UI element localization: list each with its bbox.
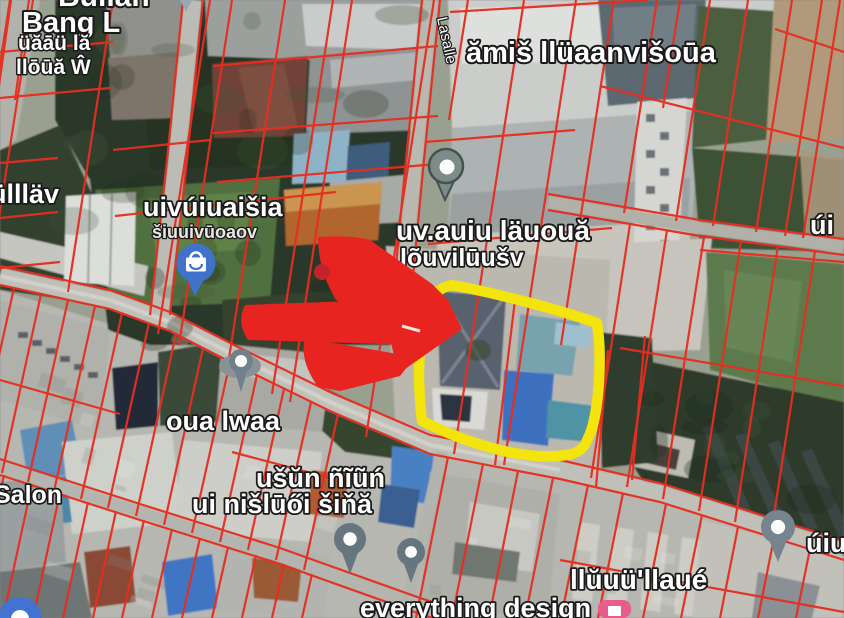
svg-text:lõuvilūušv: lõuvilūušv — [400, 244, 524, 272]
svg-text:ămiš llüaanvišoūa: ămiš llüaanvišoūa — [466, 37, 717, 69]
svg-text:uv.auiu läuouă: uv.auiu läuouă — [396, 215, 590, 246]
svg-text:úiu: úiu — [806, 528, 844, 558]
svg-text:oua lwaa: oua lwaa — [166, 406, 281, 436]
svg-text:úi: úi — [810, 210, 834, 240]
svg-text:llŭuü'llaué: llŭuü'llaué — [570, 564, 707, 595]
svg-text:everything design: everything design — [360, 593, 591, 618]
svg-text:ui nišlūői šiňă: ui nišlūői šiňă — [192, 489, 373, 519]
svg-text:üăāü lă: üăāü lă — [18, 32, 91, 55]
svg-text:šiuuivūoaov: šiuuivūoaov — [152, 222, 257, 242]
svg-text:Salon: Salon — [0, 481, 62, 509]
svg-text:üllläv: üllläv — [0, 179, 59, 209]
svg-text:llōūă Ŵ: llōūă Ŵ — [16, 55, 91, 79]
svg-text:uivúiuaišia: uivúiuaišia — [143, 192, 284, 222]
